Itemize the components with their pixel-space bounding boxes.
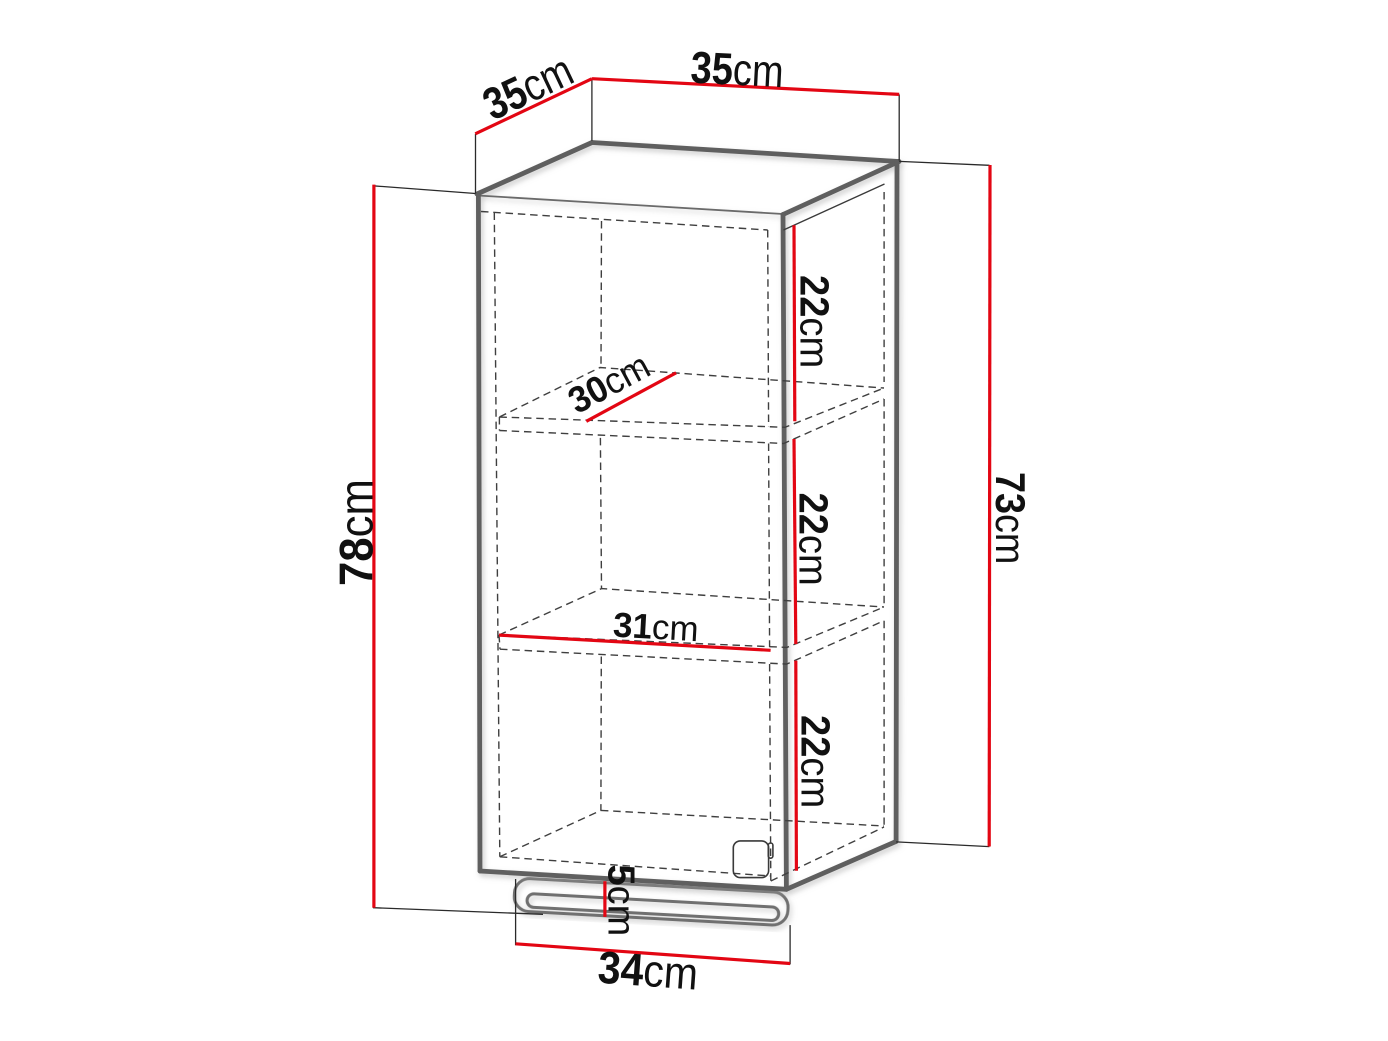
svg-text:22cm: 22cm <box>790 493 836 586</box>
svg-text:22cm: 22cm <box>791 275 837 368</box>
svg-text:22cm: 22cm <box>792 715 838 808</box>
svg-text:5cm: 5cm <box>600 865 642 937</box>
svg-text:73cm: 73cm <box>987 472 1033 564</box>
svg-text:35cm: 35cm <box>690 42 785 97</box>
svg-text:34cm: 34cm <box>596 943 699 1000</box>
svg-text:78cm: 78cm <box>330 479 383 586</box>
svg-text:31cm: 31cm <box>612 606 700 650</box>
